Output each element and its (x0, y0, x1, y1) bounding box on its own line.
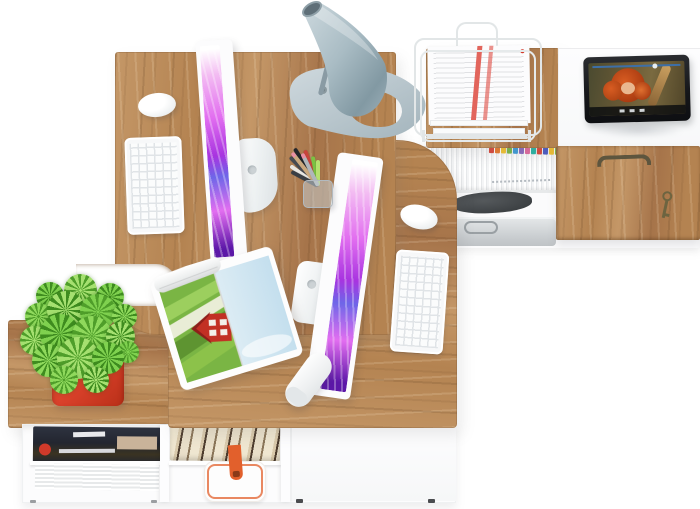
cabinet-foot (151, 500, 157, 503)
character-bow (647, 63, 672, 107)
keyboard-2 (390, 249, 450, 354)
logo-mark-icon (247, 165, 257, 175)
magazine-stack (33, 426, 161, 463)
white-cabinet-door (290, 426, 456, 501)
logo-mark-icon (307, 279, 317, 289)
magazine-red-circle (39, 443, 51, 455)
bag-strap (228, 445, 243, 481)
product-photo-office-set (0, 0, 700, 509)
keyboard-1 (124, 136, 184, 235)
key-tooth (664, 213, 670, 217)
magazine-cover-photo (117, 436, 157, 449)
video-control-bar (589, 105, 685, 117)
loose-pages-stack (35, 463, 159, 491)
door-handle (597, 154, 651, 167)
magazine-title-bar (73, 432, 105, 438)
briefcase-handle (464, 221, 498, 234)
shelf-divider (281, 425, 290, 502)
volume-control-icon (640, 109, 645, 112)
cabinet-foot (296, 499, 303, 503)
video-frame (588, 61, 685, 116)
keyboard-keys (395, 256, 444, 349)
pause-control-icon (630, 109, 635, 112)
briefcase (450, 217, 556, 246)
tablet-video-player (583, 55, 691, 124)
play-control-icon (620, 109, 625, 112)
succulent-leaf-rosette (83, 367, 109, 393)
book-row (170, 427, 280, 462)
cabinet-foot (30, 500, 36, 503)
basket-leg (528, 130, 531, 142)
keyboard-keys (130, 142, 180, 229)
cabinet-foot (428, 499, 435, 503)
magazine-headline-bar (59, 449, 115, 453)
paper-sheet-edge (430, 120, 528, 126)
pen-cup (303, 180, 333, 208)
succulent-leaf-rosette (50, 366, 78, 394)
strap-buckle (233, 471, 240, 477)
paper-sheet-edge (433, 128, 525, 134)
basket-leg (422, 130, 425, 142)
shelf-divider (160, 425, 169, 502)
basket-foot-bar (426, 136, 528, 139)
tablet-reflection (592, 122, 684, 138)
progress-thumb (652, 63, 657, 68)
